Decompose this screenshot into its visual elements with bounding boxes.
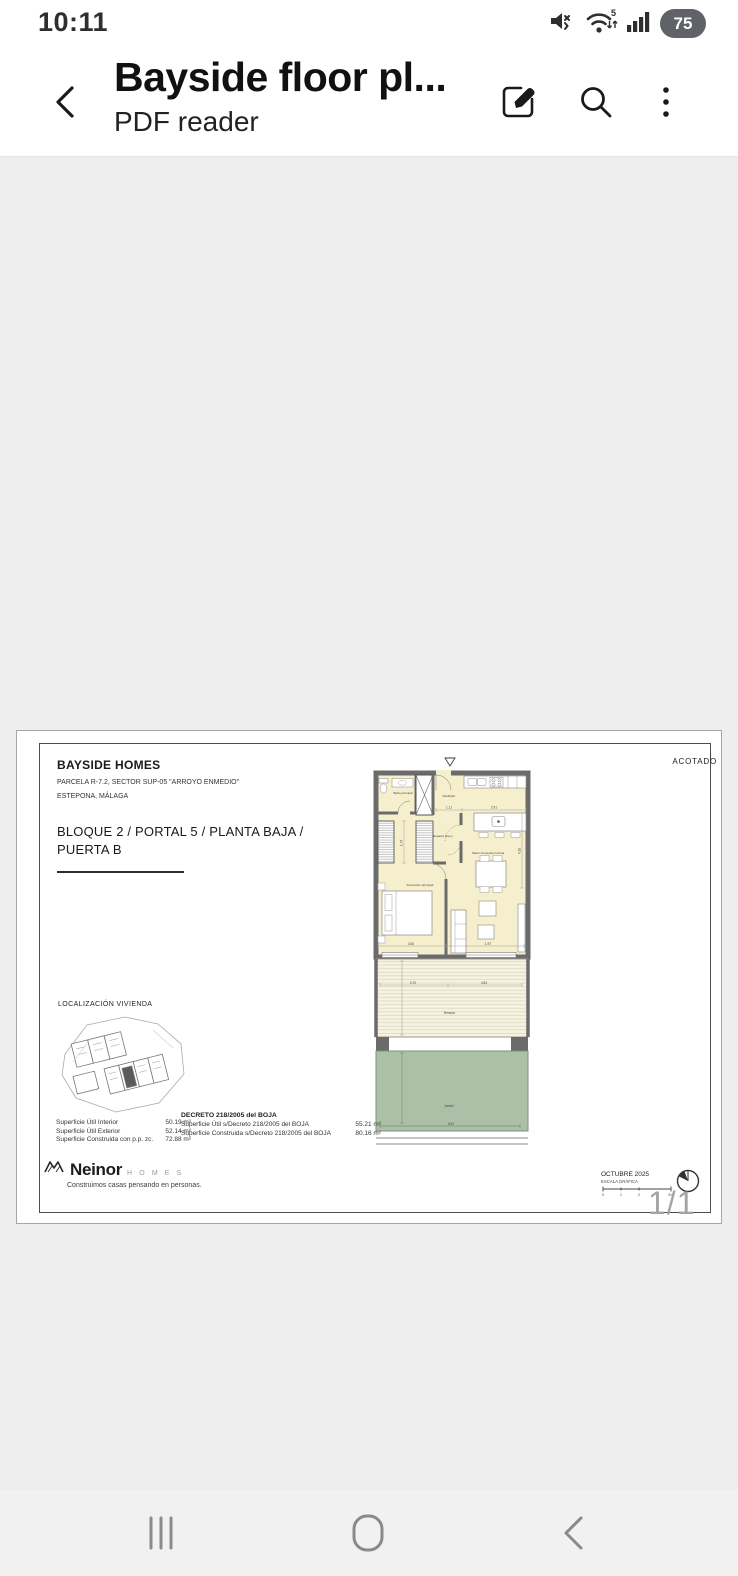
signal-icon <box>626 7 652 40</box>
dim-pasillo: 1.74 <box>400 840 404 846</box>
table-row: Superficie Útil s/Decreto 218/2005 del B… <box>181 1121 381 1130</box>
entrance-marker-icon <box>445 758 455 766</box>
room-label-recibidor: Recibidor <box>443 794 456 798</box>
pdf-viewer-canvas[interactable]: BAYSIDE HOMES PARCELA R-7.2, SECTOR SUP-… <box>0 157 738 1490</box>
room-label-dormitorio: Dormitorio principal <box>407 883 434 887</box>
room-label-salon: Salón-Comedor-Cocina <box>472 851 505 855</box>
dim-jardin: 6.52 <box>448 1122 454 1126</box>
nav-back-icon <box>557 1514 589 1552</box>
project-name: BAYSIDE HOMES <box>57 758 160 772</box>
status-time: 10:11 <box>38 7 108 38</box>
more-options-button[interactable] <box>642 78 690 126</box>
dim-terraza-izq: 3.70 <box>410 981 416 985</box>
table-row: Superficie Construida con p.p. zc.72.88 … <box>56 1136 191 1145</box>
back-button[interactable] <box>46 80 86 124</box>
dim-salon: 1.97 <box>485 942 491 946</box>
localizacion-title: LOCALIZACIÓN VIVIENDA <box>58 1001 152 1008</box>
battery-indicator: 75 <box>660 9 706 38</box>
search-icon <box>574 80 618 124</box>
pdf-page[interactable]: BAYSIDE HOMES PARCELA R-7.2, SECTOR SUP-… <box>16 730 722 1224</box>
brand-block: Neinor H O M E S Construimos casas pensa… <box>43 1159 283 1189</box>
brand-tagline: Construimos casas pensando en personas. <box>67 1182 283 1189</box>
room-label-jardin: Jardín <box>444 1104 454 1108</box>
site-location-map <box>53 1012 193 1125</box>
svg-text:2: 2 <box>638 1192 641 1197</box>
room-label-espacio: Espacio Homy <box>433 834 453 838</box>
app-header: Bayside floor pl... PDF reader <box>0 42 738 156</box>
chevron-left-icon <box>46 80 86 124</box>
project-address-line2: ESTEPONA, MÁLAGA <box>57 793 128 800</box>
acotado-label: ACOTADO <box>629 757 717 766</box>
svg-text:0: 0 <box>602 1192 605 1197</box>
title-underline <box>57 871 184 873</box>
dim-terraza-der: 4.52 <box>481 981 487 985</box>
decreto-table: DECRETO 218/2005 del BOJA Superficie Úti… <box>181 1112 381 1138</box>
table-row: Superficie Construida s/Decreto 218/2005… <box>181 1130 381 1139</box>
room-label-bano: Baño principal <box>393 791 412 795</box>
recents-button[interactable] <box>101 1490 221 1576</box>
nav-back-button[interactable] <box>513 1490 633 1576</box>
brand-sub: H O M E S <box>127 1170 184 1177</box>
page-indicator: 1/1 <box>648 1185 695 1222</box>
document-title: Bayside floor pl... <box>114 54 474 101</box>
app-name-label: PDF reader <box>114 106 474 138</box>
project-address-line1: PARCELA R-7.2, SECTOR SUP-05 "ARROYO ENM… <box>57 779 239 786</box>
table-row: Superficie Útil Interior50.19 m² <box>56 1119 191 1128</box>
mute-icon <box>548 7 576 40</box>
dim-salon-alto: 4.10 <box>518 848 522 854</box>
recents-icon <box>139 1515 183 1551</box>
floor-plan: Baño principal Recibidor 1.11 2.91 <box>372 755 532 1158</box>
android-nav-bar <box>0 1490 738 1576</box>
neinor-logo-icon <box>43 1159 65 1175</box>
decreto-title: DECRETO 218/2005 del BOJA <box>181 1112 381 1119</box>
dim-cocina: 2.91 <box>491 806 497 810</box>
home-button[interactable] <box>308 1490 428 1576</box>
wifi-icon: 5 <box>584 6 618 41</box>
dim-recibidor: 1.11 <box>446 806 452 810</box>
brand-name: Neinor <box>70 1160 122 1180</box>
more-vertical-icon <box>644 80 688 124</box>
unit-title: BLOQUE 2 / PORTAL 5 / PLANTA BAJA / PUER… <box>57 823 303 859</box>
dim-dormitorio: 3.50 <box>408 942 414 946</box>
edit-pencil-icon <box>496 80 540 124</box>
status-bar: 10:11 5 <box>0 0 738 42</box>
app-chrome: 10:11 5 <box>0 0 738 157</box>
svg-text:1: 1 <box>620 1192 623 1197</box>
sheet-date: OCTUBRE 2025 <box>601 1171 679 1178</box>
edit-button[interactable] <box>494 78 542 126</box>
room-label-terraza: Terraza <box>443 1011 454 1015</box>
wifi-5-label: 5 <box>611 8 616 18</box>
table-row: Superficie Útil Exterior52.14 m² <box>56 1128 191 1137</box>
search-button[interactable] <box>572 78 620 126</box>
home-icon <box>350 1513 386 1553</box>
surface-table: Superficie Útil Interior50.19 m² Superfi… <box>56 1119 191 1145</box>
